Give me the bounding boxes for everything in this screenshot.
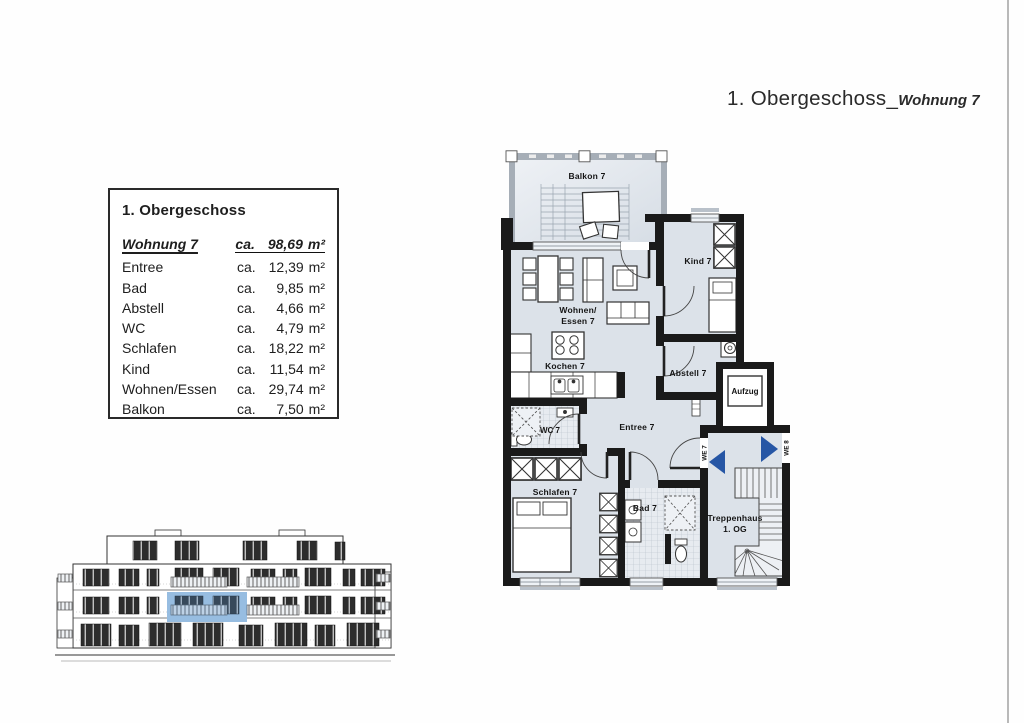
legend-row: Abstell ca.4,66m² — [122, 300, 325, 320]
legend-total-value: ca. 98,69 m² — [235, 236, 325, 253]
wc-label: WC 7 — [540, 426, 561, 435]
scan-edge-artifact — [1007, 0, 1009, 723]
entree-label: Entree 7 — [619, 422, 654, 432]
page-title-apartment: Wohnung 7 — [898, 92, 979, 109]
kochen-label: Kochen 7 — [545, 361, 585, 371]
stove-island — [552, 332, 584, 359]
legend-row: WC ca.4,79m² — [122, 320, 325, 340]
schlafen-label: Schlafen 7 — [533, 487, 578, 497]
wohnen-label-line2: Essen 7 — [561, 316, 595, 326]
kind-label: Kind 7 — [684, 256, 711, 266]
we8-label: WE 8 — [784, 440, 791, 456]
legend-total-row: Wohnung 7 ca. 98,69 m² — [122, 236, 325, 256]
building-elevation — [55, 528, 395, 673]
page-title-floor: 1. Obergeschoss_ — [727, 87, 898, 110]
bath-toilet — [676, 546, 687, 562]
area-legend-box: 1. Obergeschoss Wohnung 7 ca. 98,69 m² E… — [108, 188, 339, 419]
legend-row: Entree ca.12,39m² — [122, 259, 325, 279]
balkon-label: Balkon 7 — [568, 171, 605, 181]
legend-row: Balkon ca.7,50m² — [122, 401, 325, 421]
wohnen-label-line1: Wohnen/ — [559, 305, 597, 315]
balcony-area — [506, 151, 667, 246]
bad-label: Bad 7 — [633, 503, 657, 513]
floor-plan: Balkon 7 Kind 7 Wohnen/ Essen 7 Kochen 7… — [495, 150, 805, 605]
abstell-label: Abstell 7 — [669, 368, 706, 378]
treppenhaus-label-line2: 1. OG — [723, 524, 747, 534]
page-title: 1. Obergeschoss_Wohnung 7 — [727, 87, 980, 111]
legend-row: Kind ca.11,54m² — [122, 361, 325, 381]
legend-header: 1. Obergeschoss — [122, 202, 325, 219]
aufzug-label: Aufzug — [731, 387, 758, 396]
legend-row: Schlafen ca.18,22m² — [122, 340, 325, 360]
treppenhaus-label-line1: Treppenhaus — [707, 513, 762, 523]
we7-label: WE 7 — [702, 445, 709, 461]
legend-row: Wohnen/Essen ca.29,74m² — [122, 381, 325, 401]
legend-row: Bad ca.9,85m² — [122, 280, 325, 300]
scanned-floorplan-page: 1. Obergeschoss_Wohnung 7 1. Obergeschos… — [0, 0, 1024, 723]
legend-total-label: Wohnung 7 — [122, 236, 198, 252]
